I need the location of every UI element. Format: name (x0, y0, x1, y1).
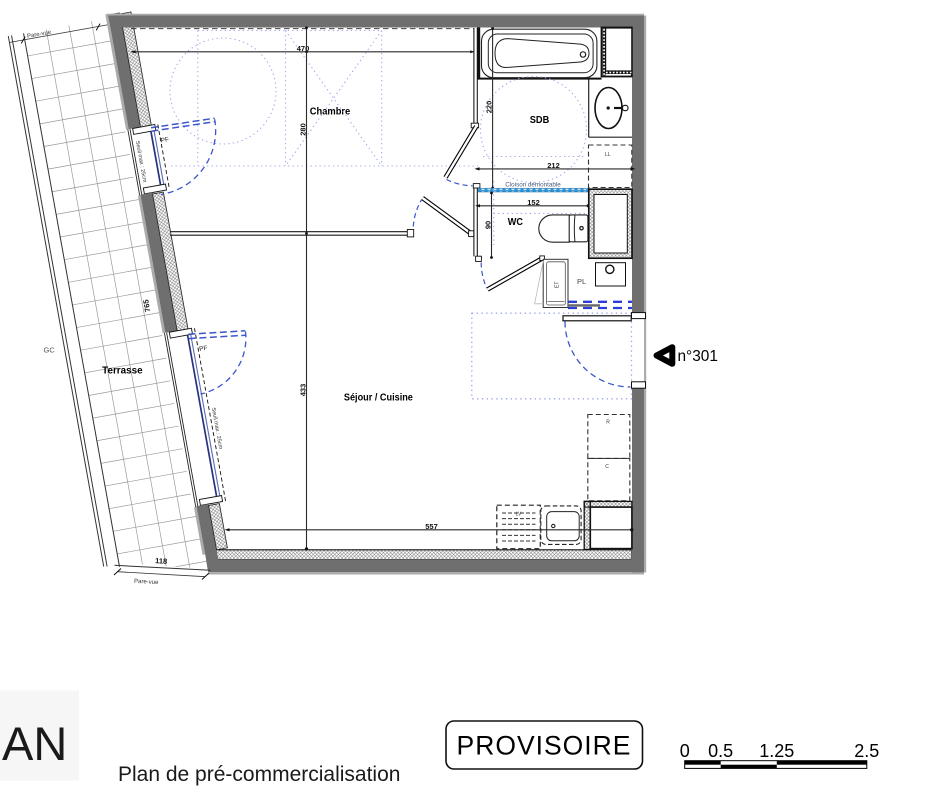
svg-text:GC: GC (44, 346, 56, 355)
svg-text:ET: ET (555, 282, 561, 288)
svg-text:AN: AN (2, 717, 67, 770)
svg-text:470: 470 (297, 44, 310, 53)
svg-text:0: 0 (680, 741, 690, 761)
svg-text:LL: LL (605, 152, 611, 158)
svg-text:Séjour / Cuisine: Séjour / Cuisine (344, 393, 413, 404)
svg-text:Plan de pré-commercialisation: Plan de pré-commercialisation (118, 763, 400, 786)
svg-text:90: 90 (484, 221, 493, 229)
svg-text:Chambre: Chambre (310, 107, 351, 118)
svg-text:1.25: 1.25 (759, 741, 794, 761)
svg-text:LV: LV (516, 512, 522, 518)
svg-text:2.5: 2.5 (854, 741, 879, 761)
svg-text:Terrasse: Terrasse (102, 366, 143, 377)
svg-text:SDB: SDB (530, 115, 550, 126)
svg-text:R: R (606, 420, 610, 426)
svg-text:WC: WC (508, 217, 523, 228)
svg-text:212: 212 (547, 161, 560, 170)
svg-text:PF: PF (199, 345, 208, 353)
svg-text:C: C (605, 464, 609, 470)
svg-text:557: 557 (425, 522, 438, 531)
svg-text:n°301: n°301 (678, 348, 718, 365)
svg-text:PL: PL (577, 277, 586, 286)
svg-text:280: 280 (299, 123, 308, 136)
svg-text:0.5: 0.5 (708, 741, 733, 761)
svg-text:118: 118 (155, 556, 168, 566)
svg-text:PROVISOIRE: PROVISOIRE (457, 731, 632, 761)
svg-text:220: 220 (485, 101, 494, 114)
svg-text:152: 152 (527, 198, 540, 207)
svg-text:433: 433 (299, 384, 308, 397)
svg-text:PF: PF (160, 136, 169, 144)
svg-text:Cloison démontable: Cloison démontable (505, 182, 561, 189)
